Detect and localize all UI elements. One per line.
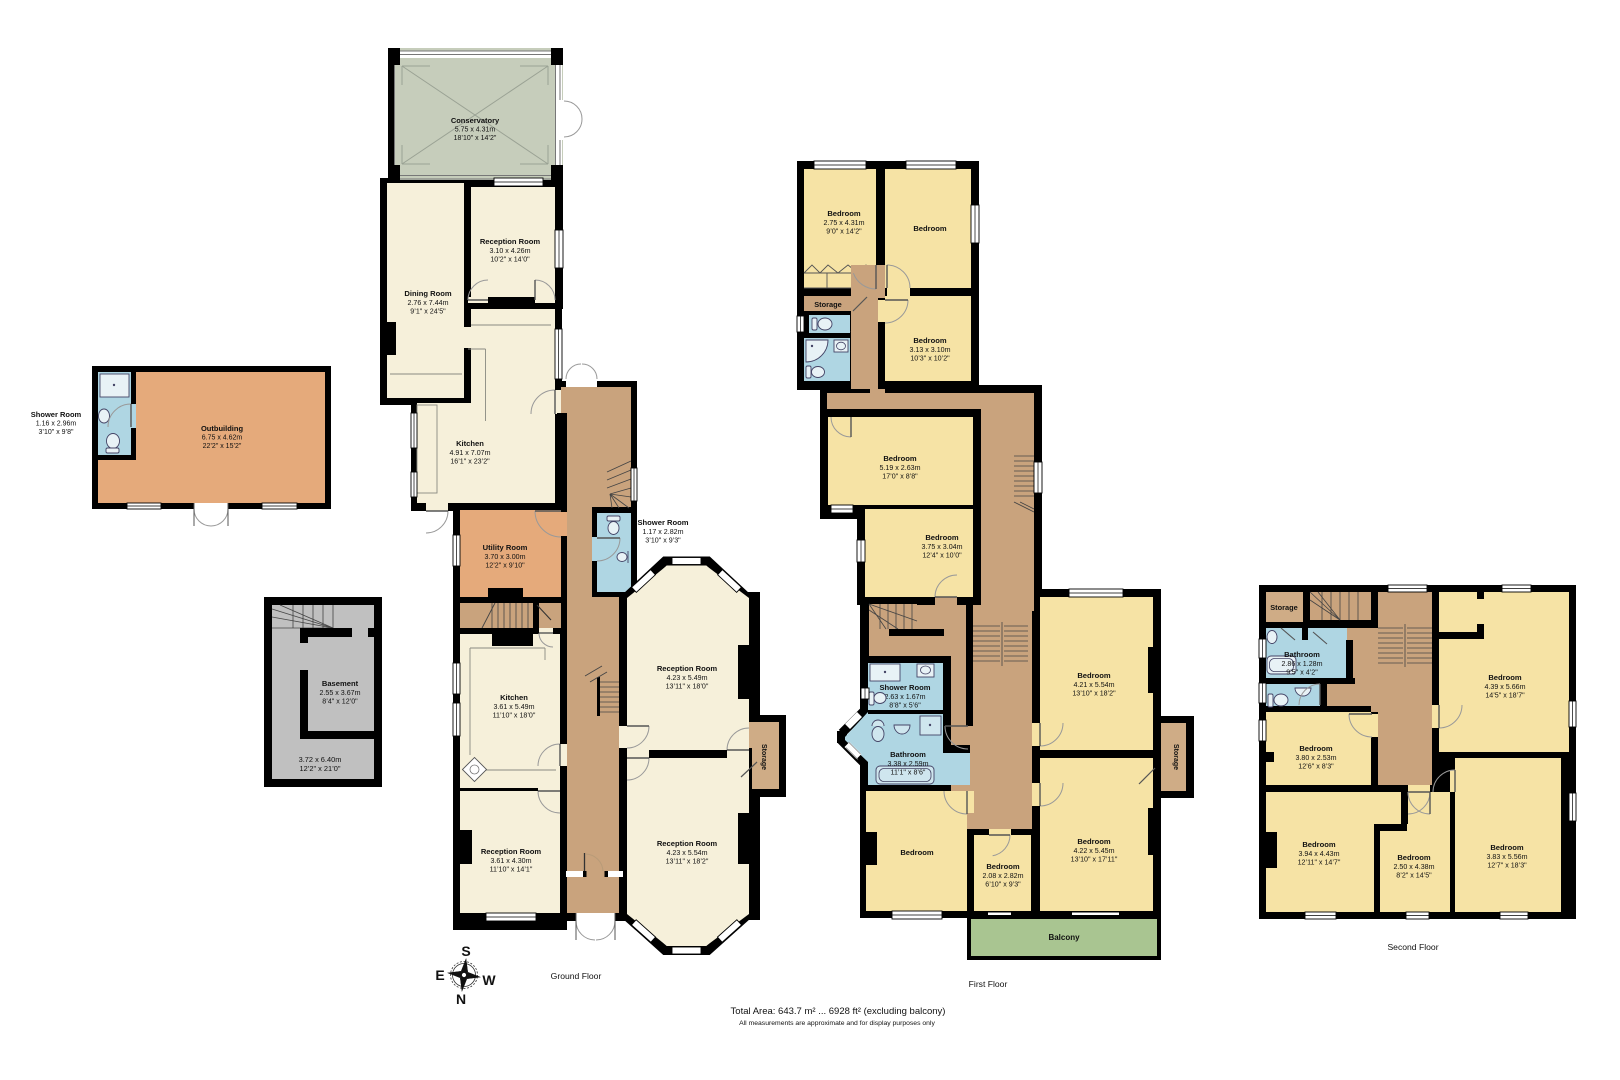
svg-text:Bedroom: Bedroom bbox=[913, 336, 947, 345]
svg-text:Bedroom: Bedroom bbox=[883, 454, 917, 463]
svg-text:2.63 x 1.67m: 2.63 x 1.67m bbox=[884, 693, 925, 701]
svg-text:11’10" x 18’0": 11’10" x 18’0" bbox=[493, 712, 536, 720]
svg-text:2.86 x 1.28m: 2.86 x 1.28m bbox=[1281, 660, 1322, 668]
svg-text:6’10" x 9’3": 6’10" x 9’3" bbox=[985, 881, 1021, 889]
svg-text:8’2" x 14’5": 8’2" x 14’5" bbox=[1396, 872, 1432, 880]
svg-text:2.08 x 2.82m: 2.08 x 2.82m bbox=[982, 872, 1023, 880]
svg-text:4.39 x 5.66m: 4.39 x 5.66m bbox=[1484, 683, 1525, 691]
svg-text:5.19 x 2.63m: 5.19 x 2.63m bbox=[879, 464, 920, 472]
svg-text:3’10" x 9’8": 3’10" x 9’8" bbox=[39, 429, 74, 436]
svg-text:Bathroom: Bathroom bbox=[1284, 650, 1320, 659]
svg-text:Bedroom: Bedroom bbox=[1299, 744, 1333, 753]
svg-text:4.91 x 7.07m: 4.91 x 7.07m bbox=[449, 449, 490, 457]
svg-text:Total Area: 643.7 m² ... 6928: Total Area: 643.7 m² ... 6928 ft² (exclu… bbox=[731, 1006, 946, 1017]
svg-text:14’5" x 18’7": 14’5" x 18’7" bbox=[1485, 692, 1525, 700]
svg-text:10’2" x 14’0": 10’2" x 14’0" bbox=[490, 256, 530, 264]
svg-text:Bedroom: Bedroom bbox=[1077, 837, 1111, 846]
svg-text:9’1" x 24’5": 9’1" x 24’5" bbox=[410, 308, 446, 316]
svg-text:3.75 x 3.04m: 3.75 x 3.04m bbox=[921, 543, 962, 551]
svg-text:Bedroom: Bedroom bbox=[913, 224, 947, 233]
svg-text:16’1" x 23’2": 16’1" x 23’2" bbox=[450, 458, 490, 466]
svg-text:2.75 x 4.31m: 2.75 x 4.31m bbox=[823, 219, 864, 227]
svg-text:Storage: Storage bbox=[760, 744, 767, 770]
svg-text:Kitchen: Kitchen bbox=[500, 693, 528, 702]
svg-text:12’2" x 21’0": 12’2" x 21’0" bbox=[300, 764, 341, 773]
svg-text:10’3" x 10’2": 10’3" x 10’2" bbox=[910, 355, 950, 363]
svg-text:8’4" x 12’0": 8’4" x 12’0" bbox=[322, 698, 358, 706]
svg-text:13’11" x 18’2": 13’11" x 18’2" bbox=[666, 858, 709, 866]
svg-text:9’0" x 14’2": 9’0" x 14’2" bbox=[826, 228, 862, 236]
svg-text:12’6" x 8’3": 12’6" x 8’3" bbox=[1298, 763, 1334, 771]
svg-text:Utility Room: Utility Room bbox=[483, 543, 528, 552]
svg-text:Bathroom: Bathroom bbox=[890, 750, 926, 759]
svg-text:6.75 x 4.62m: 6.75 x 4.62m bbox=[202, 435, 243, 442]
svg-text:5.75 x 4.31m: 5.75 x 4.31m bbox=[455, 127, 496, 134]
svg-text:3.83 x 5.56m: 3.83 x 5.56m bbox=[1486, 853, 1527, 861]
svg-text:13’10" x 17’11": 13’10" x 17’11" bbox=[1071, 856, 1118, 864]
svg-text:Shower Room: Shower Room bbox=[637, 518, 688, 527]
svg-text:3.61 x 5.49m: 3.61 x 5.49m bbox=[493, 703, 534, 711]
svg-text:2.76 x 7.44m: 2.76 x 7.44m bbox=[407, 299, 448, 307]
svg-text:Storage: Storage bbox=[1270, 603, 1298, 612]
svg-text:Basement: Basement bbox=[322, 679, 359, 688]
svg-text:12’7" x 18’3": 12’7" x 18’3" bbox=[1487, 862, 1527, 870]
svg-text:Bedroom: Bedroom bbox=[827, 209, 861, 218]
svg-text:Kitchen: Kitchen bbox=[456, 439, 484, 448]
svg-text:Bedroom: Bedroom bbox=[1302, 840, 1336, 849]
svg-text:Bedroom: Bedroom bbox=[1490, 843, 1524, 852]
svg-text:Shower Room: Shower Room bbox=[31, 410, 82, 419]
svg-text:3’10" x 9’3": 3’10" x 9’3" bbox=[645, 537, 681, 545]
svg-text:Reception Room: Reception Room bbox=[480, 237, 541, 246]
svg-text:All measurements are approxima: All measurements are approximate and for… bbox=[739, 1020, 935, 1027]
svg-text:2.50 x 4.38m: 2.50 x 4.38m bbox=[1393, 863, 1434, 871]
svg-text:4.23 x 5.54m: 4.23 x 5.54m bbox=[666, 849, 707, 857]
svg-text:3.38 x 2.59m: 3.38 x 2.59m bbox=[887, 760, 928, 768]
svg-text:9’5" x 4’2": 9’5" x 4’2" bbox=[1286, 669, 1318, 677]
svg-text:Outbuilding: Outbuilding bbox=[201, 424, 243, 433]
svg-text:N: N bbox=[456, 991, 466, 1007]
svg-text:11’1" x 8’6": 11’1" x 8’6" bbox=[891, 769, 926, 777]
svg-text:22’2" x 15’2": 22’2" x 15’2" bbox=[203, 443, 242, 450]
svg-text:E: E bbox=[435, 967, 444, 983]
svg-text:4.22 x 5.45m: 4.22 x 5.45m bbox=[1073, 847, 1114, 855]
svg-text:S: S bbox=[461, 943, 470, 959]
svg-text:12’11" x 14’7": 12’11" x 14’7" bbox=[1298, 859, 1341, 867]
svg-text:Bedroom: Bedroom bbox=[925, 533, 959, 542]
svg-text:2.55 x 3.67m: 2.55 x 3.67m bbox=[319, 689, 360, 697]
svg-text:1.17 x 2.82m: 1.17 x 2.82m bbox=[642, 528, 683, 536]
svg-text:13’11" x 18’0": 13’11" x 18’0" bbox=[666, 683, 709, 691]
svg-text:3.94 x 4.43m: 3.94 x 4.43m bbox=[1298, 850, 1339, 858]
svg-text:12’4" x 10’0": 12’4" x 10’0" bbox=[922, 552, 962, 560]
svg-text:Storage: Storage bbox=[1172, 744, 1179, 770]
svg-text:Conservatory: Conservatory bbox=[451, 116, 500, 125]
svg-text:3.72 x 6.40m: 3.72 x 6.40m bbox=[299, 755, 342, 764]
svg-text:1.16 x 2.96m: 1.16 x 2.96m bbox=[36, 421, 77, 428]
svg-text:3.10 x 4.26m: 3.10 x 4.26m bbox=[489, 247, 530, 255]
svg-text:Storage: Storage bbox=[814, 300, 842, 309]
svg-text:18’10" x 14’2": 18’10" x 14’2" bbox=[454, 135, 497, 142]
svg-text:3.61 x 4.30m: 3.61 x 4.30m bbox=[490, 857, 531, 865]
svg-text:17’0" x 8’8": 17’0" x 8’8" bbox=[882, 473, 918, 481]
svg-text:Shower Room: Shower Room bbox=[879, 683, 930, 692]
svg-text:Ground Floor: Ground Floor bbox=[551, 971, 602, 981]
svg-text:Second Floor: Second Floor bbox=[1387, 942, 1438, 952]
svg-text:Bedroom: Bedroom bbox=[1488, 673, 1522, 682]
svg-text:12’2" x 9’10": 12’2" x 9’10" bbox=[485, 562, 525, 570]
svg-text:4.23 x 5.49m: 4.23 x 5.49m bbox=[666, 674, 707, 682]
svg-text:Bedroom: Bedroom bbox=[1077, 671, 1111, 680]
svg-text:Reception Room: Reception Room bbox=[481, 847, 542, 856]
svg-text:Dining Room: Dining Room bbox=[404, 289, 451, 298]
svg-text:Reception Room: Reception Room bbox=[657, 839, 718, 848]
svg-text:Bedroom: Bedroom bbox=[900, 848, 934, 857]
svg-text:Bedroom: Bedroom bbox=[1397, 853, 1431, 862]
svg-text:First Floor: First Floor bbox=[969, 979, 1008, 989]
svg-text:Balcony: Balcony bbox=[1048, 933, 1080, 942]
svg-text:8’8" x 5’6": 8’8" x 5’6" bbox=[889, 702, 921, 710]
svg-text:W: W bbox=[482, 972, 496, 988]
svg-text:3.80 x 2.53m: 3.80 x 2.53m bbox=[1295, 754, 1336, 762]
svg-text:Bedroom: Bedroom bbox=[986, 862, 1020, 871]
svg-text:Reception Room: Reception Room bbox=[657, 664, 718, 673]
svg-text:11’10" x 14’1": 11’10" x 14’1" bbox=[490, 866, 533, 874]
svg-text:3.13 x 3.10m: 3.13 x 3.10m bbox=[909, 346, 950, 354]
svg-text:13’10" x 18’2": 13’10" x 18’2" bbox=[1072, 690, 1116, 698]
svg-text:4.21 x 5.54m: 4.21 x 5.54m bbox=[1073, 681, 1114, 689]
svg-text:3.70 x 3.00m: 3.70 x 3.00m bbox=[484, 553, 525, 561]
